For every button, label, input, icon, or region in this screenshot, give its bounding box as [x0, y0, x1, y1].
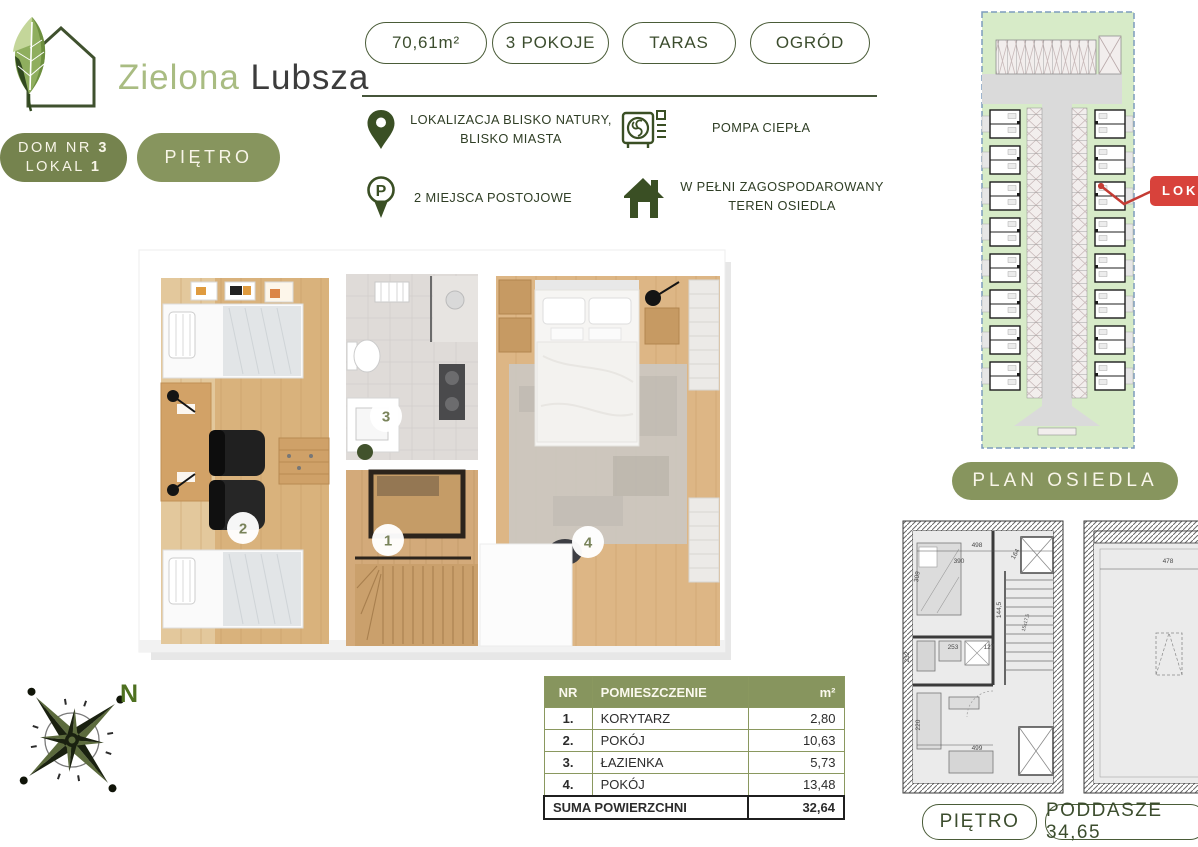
brand-word-primary: Zielona [118, 58, 240, 97]
col-header-area: m² [748, 677, 844, 708]
feature-estate: W PEŁNI ZAGOSPODAROWANY TEREN OSIEDLA [622, 172, 888, 222]
rooms-table: NR POMIESZCZENIE m² 1. KORYTARZ 2,80 2. … [543, 676, 845, 820]
table-row: 4. POKÓJ 13,48 [544, 774, 844, 797]
room-marker-1: 1 [384, 533, 392, 550]
room-marker-2-group: 2 [227, 512, 259, 544]
table-row: 3. ŁAZIENKA 5,73 [544, 752, 844, 774]
table-header-row: NR POMIESZCZENIE m² [544, 677, 844, 708]
feature-estate-text: W PEŁNI ZAGOSPODAROWANY TEREN OSIEDLA [676, 178, 888, 215]
dim-127: 127 [984, 644, 995, 651]
unit-badge-line1: DOM NR 3 [18, 139, 109, 157]
feature-parking-text: 2 MIEJSCA POSTOJOWE [414, 189, 572, 208]
site-plan-map [980, 10, 1138, 452]
dim-390: 390 [954, 558, 965, 565]
spec-pill-terrace: TARAS [622, 22, 736, 64]
svg-text:P: P [376, 183, 387, 200]
page: Zielona Lubsza DOM NR 3 LOKAL 1 PIĘTRO 7… [0, 0, 1198, 847]
location-pin-icon [366, 108, 396, 152]
dim-232: 232 [904, 651, 911, 662]
unit-badge-line2: LOKAL 1 [26, 158, 102, 176]
table-sum-value: 32,64 [748, 796, 844, 819]
room-marker-1-group: 1 [372, 524, 404, 556]
attic-pill: PODDASZE 34,65 [1045, 804, 1198, 840]
table-row: 2. POKÓJ 10,63 [544, 730, 844, 752]
north-label: N [120, 680, 138, 708]
col-header-nr: NR [544, 677, 592, 708]
logo-icon [4, 14, 104, 114]
feature-heat-pump-text: POMPA CIEPŁA [712, 119, 810, 138]
room-marker-2: 2 [239, 521, 247, 538]
compass-rose: N [8, 664, 158, 814]
tech-plan-floor: 498 390 164 144,5 15x17,5 253 127 309 23… [897, 515, 1069, 801]
spec-pill-garden: OGRÓD [750, 22, 870, 64]
room-1-corridor [346, 470, 478, 646]
table-row: 1. KORYTARZ 2,80 [544, 708, 844, 730]
room-2-kids [161, 278, 329, 644]
bed-top [163, 304, 303, 378]
floor-badge-label: PIĘTRO [164, 147, 252, 168]
unit-callout: LOK [1150, 176, 1198, 206]
room-marker-3: 3 [382, 409, 390, 426]
room-marker-4-group: 4 [572, 526, 604, 558]
tech-plan-attic: 478 [1078, 515, 1198, 801]
room-3-bathroom [346, 274, 478, 460]
shelf-unit [279, 438, 329, 484]
floor-badge: PIĘTRO [137, 133, 280, 182]
floor-pill: PIĘTRO [922, 804, 1037, 840]
parking-pin-icon: P [364, 175, 398, 221]
table-footer-row: SUMA POWIERZCHNI 32,64 [544, 796, 844, 819]
dim-499: 499 [972, 745, 983, 752]
double-bed [535, 280, 639, 446]
dim-144-5: 144,5 [996, 601, 1003, 618]
feature-parking: P 2 MIEJSCA POSTOJOWE [364, 174, 572, 222]
dim-498: 498 [972, 542, 983, 549]
room-marker-4: 4 [584, 535, 593, 552]
spec-pill-rooms: 3 POKOJE [492, 22, 609, 64]
dim-478: 478 [1163, 558, 1174, 565]
wall-art [191, 282, 293, 302]
brand-word-secondary: Lubsza [251, 58, 370, 97]
dim-253: 253 [948, 644, 959, 651]
leaf-graphic [13, 17, 45, 111]
col-header-name: POMIESZCZENIE [592, 677, 748, 708]
floor-plan-3d: 2 3 1 4 [133, 246, 733, 666]
header-divider [362, 95, 877, 97]
room-marker-3-group: 3 [370, 400, 402, 432]
stairwell-void [480, 544, 572, 646]
feature-location-text: LOKALIZACJA BLISKO NATURY, BLISKO MIASTA [404, 111, 618, 148]
spec-pill-area: 70,61m² [365, 22, 487, 64]
table-sum-label: SUMA POWIERZCHNI [544, 796, 748, 819]
bed-bottom [163, 550, 303, 628]
brand-title: Zielona Lubsza [118, 58, 369, 98]
plan-osiedla-button[interactable]: PLAN OSIEDLA [952, 462, 1178, 500]
house-icon [622, 174, 666, 220]
dim-220: 220 [915, 719, 922, 730]
unit-badge: DOM NR 3 LOKAL 1 [0, 133, 127, 182]
feature-heat-pump: POMPA CIEPŁA [620, 103, 810, 153]
heat-pump-icon [620, 103, 668, 153]
desk [161, 383, 211, 501]
feature-location: LOKALIZACJA BLISKO NATURY, BLISKO MIASTA [366, 106, 618, 154]
